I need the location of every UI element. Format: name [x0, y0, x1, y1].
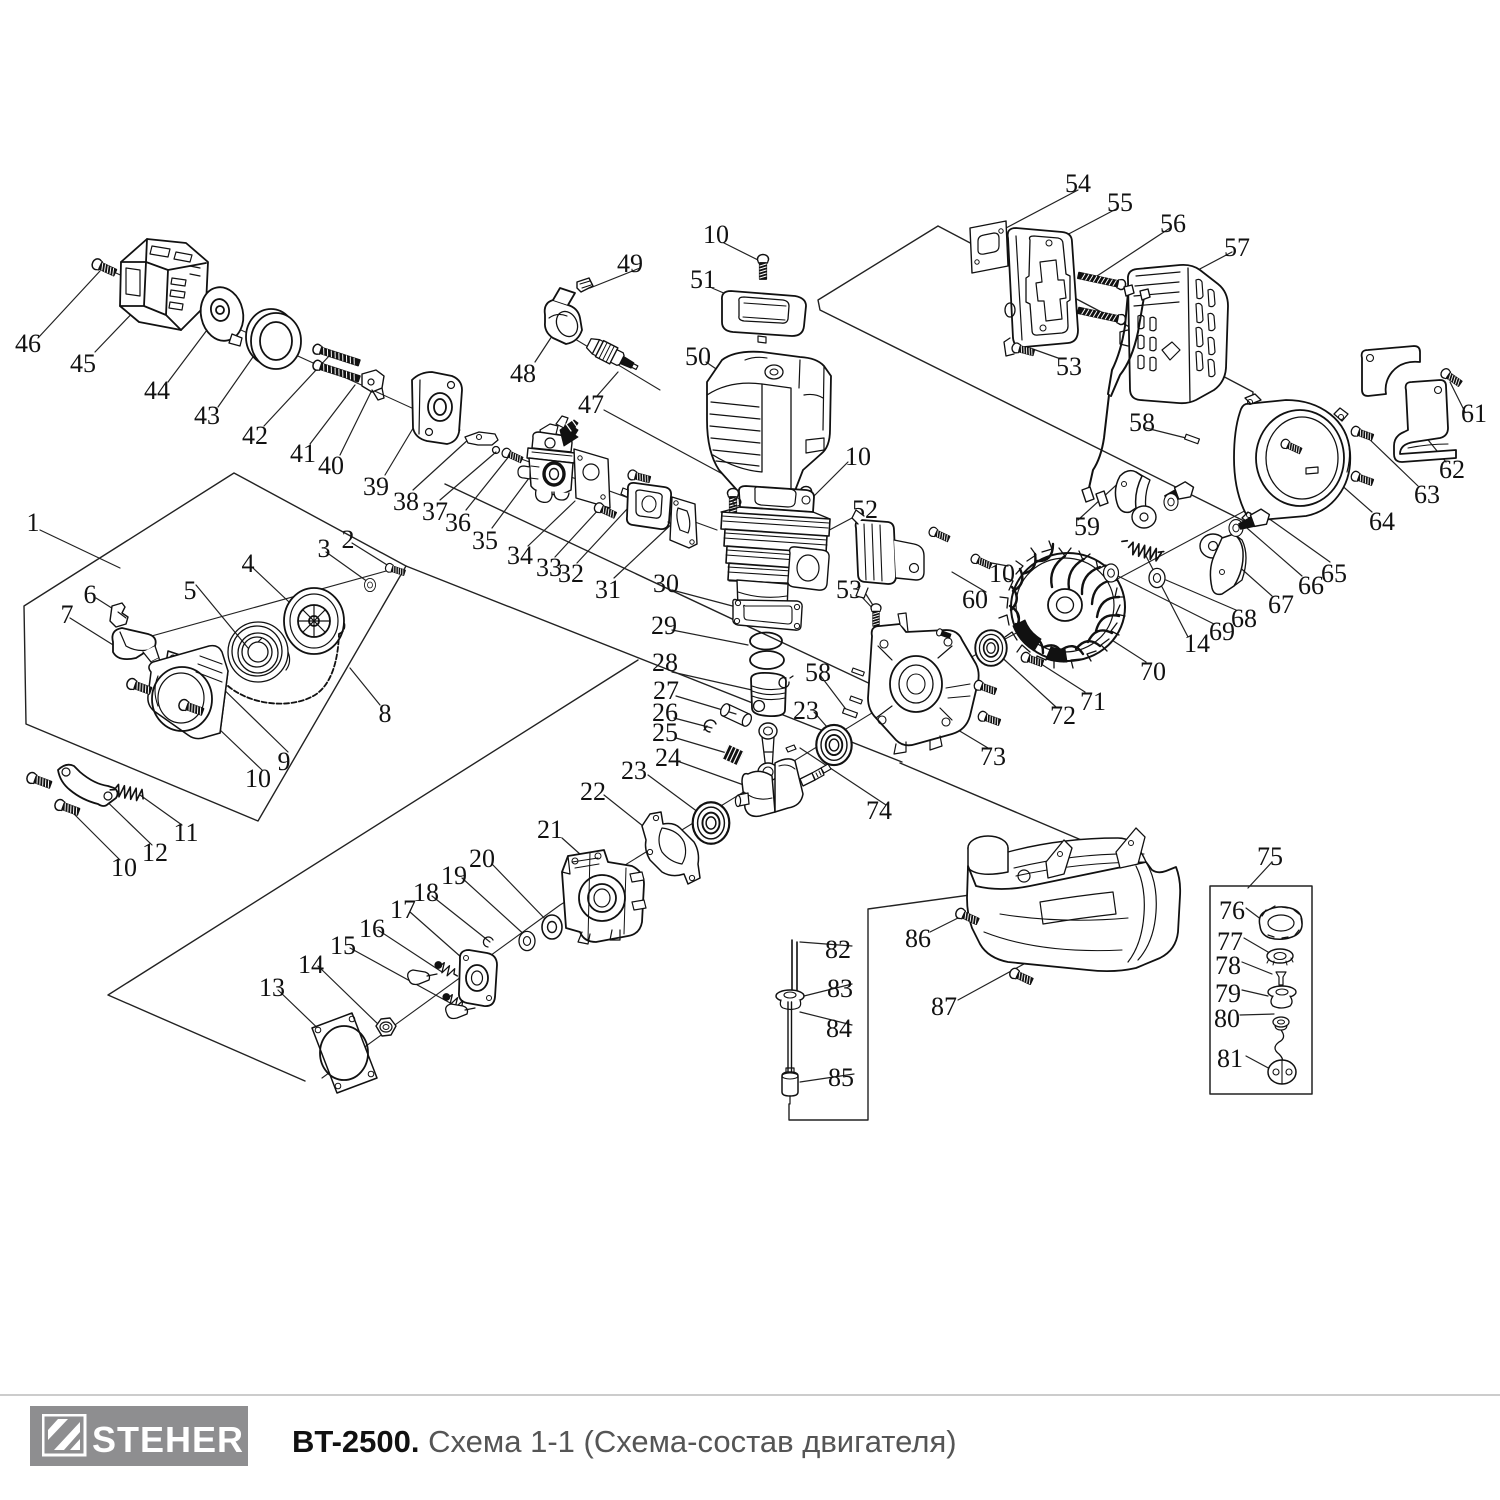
svg-text:64: 64	[1369, 507, 1395, 536]
svg-text:34: 34	[507, 541, 533, 570]
svg-text:39: 39	[363, 472, 389, 501]
svg-text:32: 32	[558, 559, 584, 588]
svg-text:29: 29	[651, 611, 677, 640]
svg-text:76: 76	[1219, 896, 1245, 925]
svg-text:22: 22	[580, 777, 606, 806]
svg-text:48: 48	[510, 359, 536, 388]
svg-text:13: 13	[259, 973, 285, 1002]
svg-text:82: 82	[825, 935, 851, 964]
svg-text:7: 7	[61, 600, 74, 629]
svg-text:43: 43	[194, 401, 220, 430]
svg-text:55: 55	[1107, 188, 1133, 217]
svg-text:30: 30	[653, 569, 679, 598]
svg-text:35: 35	[472, 526, 498, 555]
svg-text:18: 18	[413, 878, 439, 907]
svg-text:84: 84	[826, 1014, 852, 1043]
svg-text:78: 78	[1215, 951, 1241, 980]
svg-text:14: 14	[298, 950, 324, 979]
svg-text:58: 58	[1129, 408, 1155, 437]
svg-text:2: 2	[342, 525, 355, 554]
svg-text:83: 83	[827, 974, 853, 1003]
svg-text:23: 23	[793, 696, 819, 725]
svg-text:10: 10	[989, 559, 1015, 588]
svg-text:10: 10	[845, 442, 871, 471]
svg-text:41: 41	[290, 439, 316, 468]
svg-text:72: 72	[1050, 701, 1076, 730]
svg-text:23: 23	[621, 756, 647, 785]
svg-text:86: 86	[905, 924, 931, 953]
svg-text:85: 85	[828, 1063, 854, 1092]
svg-text:10: 10	[703, 220, 729, 249]
svg-text:6: 6	[84, 580, 97, 609]
svg-text:5: 5	[184, 576, 197, 605]
svg-text:60: 60	[962, 585, 988, 614]
svg-text:3: 3	[318, 534, 331, 563]
svg-text:47: 47	[578, 390, 604, 419]
svg-text:12: 12	[142, 838, 168, 867]
svg-text:44: 44	[144, 376, 170, 405]
svg-text:54: 54	[1065, 169, 1091, 198]
svg-text:75: 75	[1257, 842, 1283, 871]
svg-text:46: 46	[15, 329, 41, 358]
svg-text:80: 80	[1214, 1004, 1240, 1033]
svg-text:9: 9	[278, 747, 291, 776]
svg-text:87: 87	[931, 992, 957, 1021]
svg-text:49: 49	[617, 249, 643, 278]
svg-text:61: 61	[1461, 399, 1487, 428]
svg-text:45: 45	[70, 349, 96, 378]
svg-text:20: 20	[469, 844, 495, 873]
svg-text:81: 81	[1217, 1044, 1243, 1073]
svg-text:56: 56	[1160, 209, 1186, 238]
svg-text:21: 21	[537, 815, 563, 844]
svg-text:70: 70	[1140, 657, 1166, 686]
svg-text:63: 63	[1414, 480, 1440, 509]
svg-text:36: 36	[445, 508, 471, 537]
svg-text:16: 16	[359, 914, 385, 943]
svg-text:40: 40	[318, 451, 344, 480]
svg-text:53: 53	[1056, 352, 1082, 381]
svg-text:10: 10	[111, 853, 137, 882]
svg-text:31: 31	[595, 575, 621, 604]
svg-text:65: 65	[1321, 559, 1347, 588]
svg-text:8: 8	[379, 699, 392, 728]
svg-text:57: 57	[1224, 233, 1250, 262]
svg-text:59: 59	[1074, 512, 1100, 541]
svg-text:15: 15	[330, 931, 356, 960]
svg-text:50: 50	[685, 342, 711, 371]
svg-text:69: 69	[1209, 617, 1235, 646]
svg-text:71: 71	[1080, 687, 1106, 716]
svg-text:58: 58	[805, 658, 831, 687]
svg-text:38: 38	[393, 487, 419, 516]
svg-text:42: 42	[242, 421, 268, 450]
svg-text:28: 28	[652, 648, 678, 677]
svg-text:73: 73	[980, 742, 1006, 771]
svg-text:24: 24	[655, 743, 681, 772]
svg-text:17: 17	[390, 895, 416, 924]
svg-text:1: 1	[27, 508, 40, 537]
svg-text:11: 11	[173, 818, 198, 847]
svg-text:66: 66	[1298, 571, 1324, 600]
svg-text:14: 14	[1184, 629, 1210, 658]
svg-text:4: 4	[242, 549, 255, 578]
svg-text:19: 19	[441, 861, 467, 890]
svg-text:10: 10	[245, 764, 271, 793]
svg-text:74: 74	[866, 796, 892, 825]
svg-text:51: 51	[690, 265, 716, 294]
svg-text:67: 67	[1268, 590, 1294, 619]
